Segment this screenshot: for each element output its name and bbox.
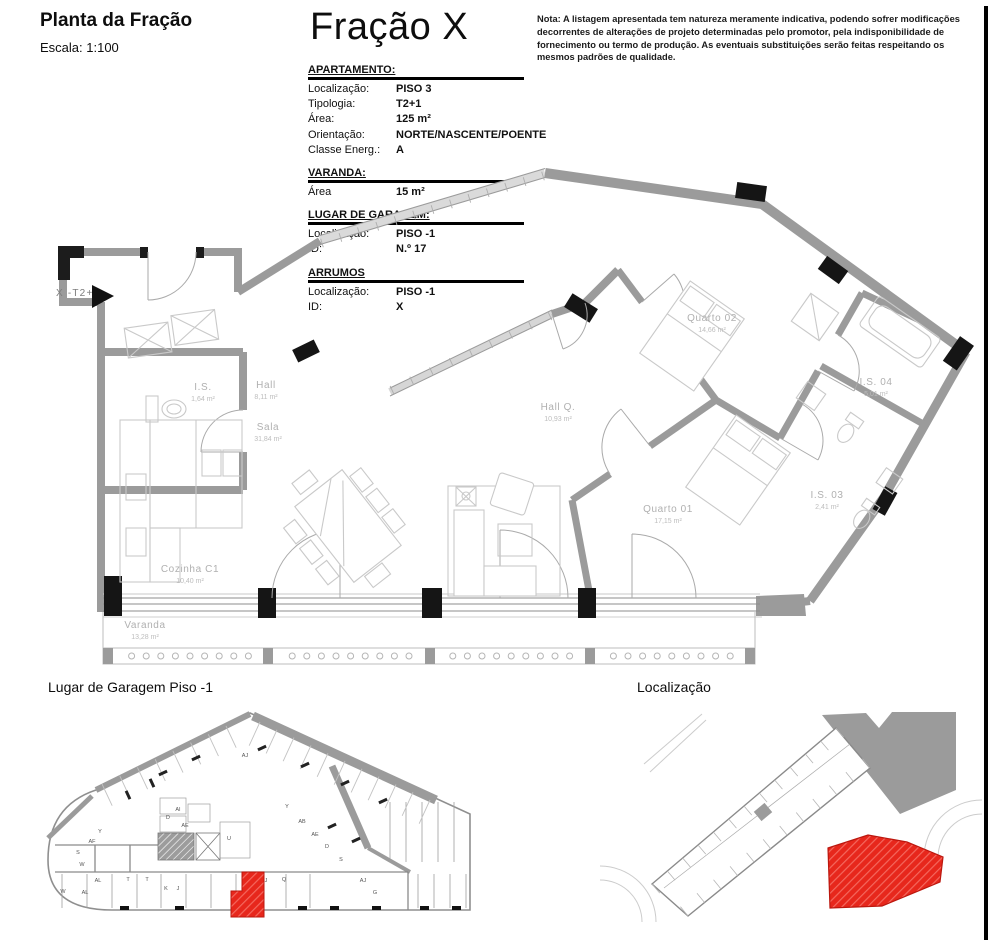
stair-core: [158, 833, 194, 860]
garage-bay-label: U: [227, 836, 231, 842]
window-band: [320, 169, 545, 248]
garage-bay-label: S: [76, 850, 80, 856]
garage-bay-label: AF: [88, 839, 96, 845]
garage-bay-label: AL: [82, 890, 89, 896]
room-label: Hall: [256, 380, 276, 391]
door-tick: [120, 906, 129, 910]
room-label: Cozinha C1: [161, 564, 219, 575]
garage-bay-label: AB: [298, 819, 306, 825]
bed-quarto-02: [640, 281, 745, 391]
room-area-label: 10,93 m²: [544, 416, 572, 423]
garage-bay-label: AJ: [360, 878, 367, 884]
room-area-label: 31,84 m²: [254, 436, 282, 443]
garage-bay-label: D: [325, 844, 329, 850]
bathroom-sink: [202, 450, 242, 476]
furniture: [120, 281, 941, 608]
garage-bay-label: Y: [98, 829, 102, 835]
shower: [791, 293, 838, 340]
plans-canvas: X -T2+1 I.S.1,64 m²Hall8,11 m²Sala31,84 …: [0, 0, 1006, 942]
garage-bay-label: W: [60, 889, 66, 895]
garage-bay-label: AL: [95, 878, 102, 884]
room-label: I.S.: [194, 382, 211, 393]
walls: [59, 173, 966, 616]
door-tick: [298, 906, 307, 910]
room-label: I.S. 04: [859, 377, 892, 388]
location-plan: [600, 712, 982, 922]
room-label: Sala: [257, 422, 279, 433]
building-ridge: [664, 744, 850, 888]
room-area-label: 2,41 m²: [815, 504, 839, 511]
garage-bay-label: AJ: [242, 753, 249, 759]
room-label: Quarto 01: [643, 504, 693, 515]
garage-bay-label: J: [177, 886, 180, 892]
sofa-set: [448, 472, 560, 596]
garage-plan: AJYABAEDSAJGAFYSWWALALTTKJDAIAEUJQ: [48, 713, 470, 917]
toilet: [146, 396, 186, 422]
glazed-partition: [390, 310, 552, 396]
room-area-label: 8,11 m²: [254, 394, 278, 401]
door-tick: [330, 906, 339, 910]
door-tick: [372, 906, 381, 910]
room-area-label: 13,28 m²: [131, 634, 159, 641]
plan-sheet: Planta da Fração Escala: 1:100 Fração X …: [0, 0, 1006, 942]
room-label: I.S. 03: [810, 490, 843, 501]
room-area-label: 17,15 m²: [654, 518, 682, 525]
sheet-border-line: [984, 6, 988, 940]
room-area-label: 1,64 m²: [191, 396, 215, 403]
garage-bay-label: G: [373, 890, 377, 896]
door-tick: [420, 906, 429, 910]
door-tick: [175, 906, 184, 910]
garage-bay-label: K: [164, 886, 168, 892]
garage-bay-label: AE: [311, 832, 319, 838]
room-label: Hall Q.: [541, 402, 576, 413]
room-area-label: 14,66 m²: [698, 327, 726, 334]
balcony-railing: [103, 612, 755, 664]
garage-bay-label: Q: [282, 877, 287, 883]
garage-bay-label: Y: [285, 804, 289, 810]
garage-bay-label: D: [166, 815, 170, 821]
door-tick: [452, 906, 461, 910]
room-area-label: 5,01 m²: [864, 391, 888, 398]
room-label: Varanda: [124, 620, 165, 631]
room-area-label: 10,40 m²: [176, 578, 204, 585]
garage-bay-label: AE: [181, 823, 189, 829]
kitchen-counter: [120, 420, 242, 582]
garage-bay-label: AI: [175, 807, 181, 813]
garage-bay-label: W: [79, 862, 85, 868]
garage-bay-label: S: [339, 857, 343, 863]
garage-bay-label: J: [265, 878, 268, 884]
apartment-floor-plan: X -T2+1 I.S.1,64 m²Hall8,11 m²Sala31,84 …: [56, 169, 974, 665]
location-highlight: [828, 835, 943, 908]
toilet-is04: [833, 412, 863, 446]
dining-table: [265, 444, 423, 608]
room-label: Quarto 02: [687, 313, 737, 324]
